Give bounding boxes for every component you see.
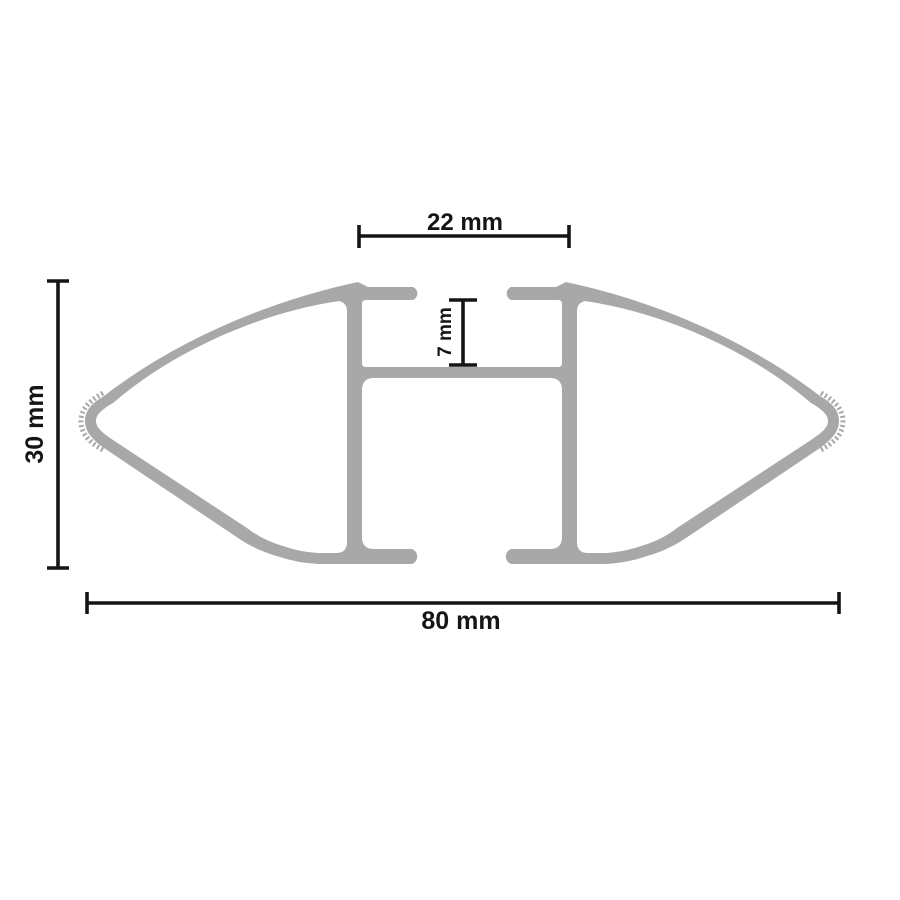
dim-label-top-channel-width: 22 mm xyxy=(427,209,503,236)
diagram-canvas: 22 mm 7 mm 30 mm 80 mm xyxy=(0,0,900,900)
dim-label-profile-width: 80 mm xyxy=(421,607,500,635)
dim-profile-height xyxy=(47,281,69,568)
dim-label-profile-height: 30 mm xyxy=(21,384,49,463)
roof-bar-profile-diagram: 22 mm 7 mm 30 mm 80 mm xyxy=(0,0,900,900)
dim-label-channel-depth: 7 mm xyxy=(435,307,456,357)
